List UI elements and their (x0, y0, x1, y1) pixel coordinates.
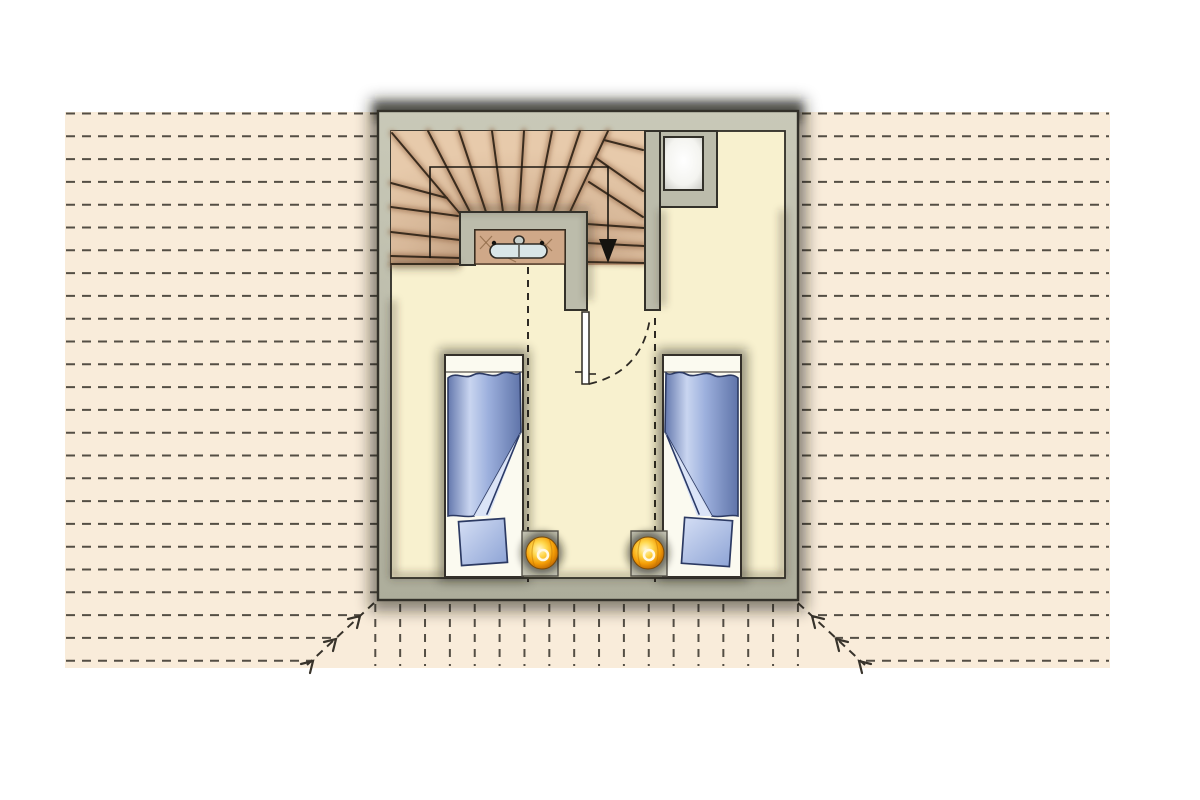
floor-plan-canvas (0, 0, 1200, 800)
pillow (681, 517, 732, 566)
pillow (459, 518, 508, 565)
bed-left (445, 355, 523, 577)
bed-right (663, 355, 741, 577)
tread-line (587, 262, 644, 263)
radiator-fitting (540, 241, 544, 245)
lamp-globe (632, 537, 664, 569)
radiator-fitting (492, 241, 496, 245)
divider-wall (645, 131, 660, 310)
door-leaf (582, 312, 589, 384)
pillow-shape (459, 518, 508, 565)
bedside-lamp (521, 532, 563, 574)
chimney-flue (664, 137, 703, 190)
lamp-globe (526, 537, 558, 569)
pillow-shape (681, 517, 732, 566)
bedside-lamp (627, 532, 669, 574)
